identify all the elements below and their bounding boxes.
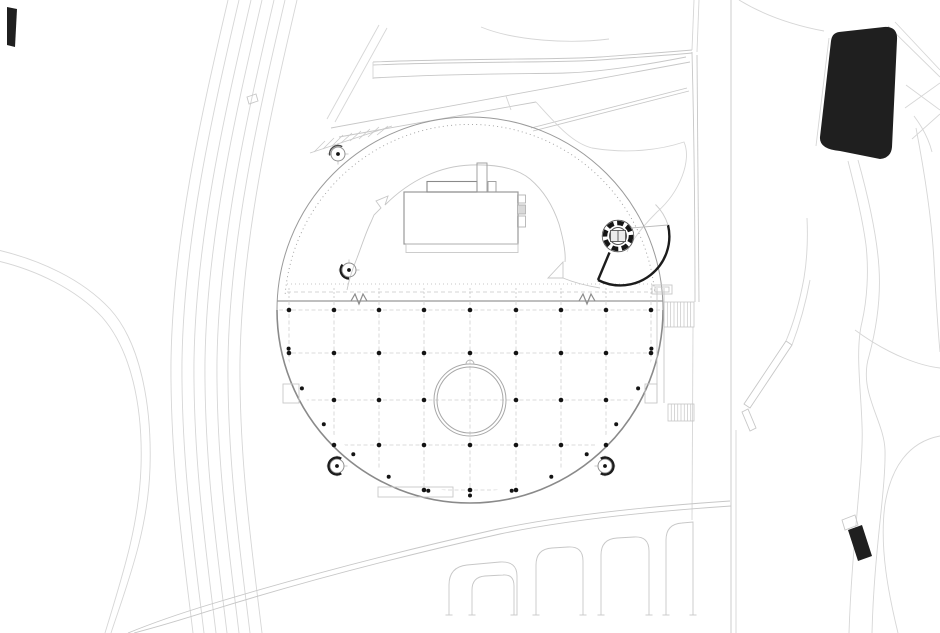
column-dot (332, 398, 337, 403)
column-dot (332, 351, 337, 356)
perimeter-dot (387, 475, 391, 479)
column-dot (377, 443, 382, 448)
column-dot (422, 488, 427, 493)
column-dot (559, 398, 564, 403)
column-dot (468, 308, 473, 313)
existing-building-topright (820, 27, 897, 159)
perimeter-dot (585, 452, 589, 456)
column-dot (559, 443, 564, 448)
perimeter-dot (636, 386, 640, 390)
column-grid (279, 288, 661, 504)
perimeter-dot (351, 452, 355, 456)
column-dot (604, 443, 609, 448)
column-dot (422, 351, 427, 356)
pavilion-chimney (477, 163, 487, 192)
road-bottom-diagonal (128, 501, 731, 633)
site-plan-canvas (0, 0, 940, 633)
existing-building-bottomright (848, 525, 872, 561)
stair-flight (664, 302, 694, 327)
perimeter-dot (300, 386, 304, 390)
perimeter-dot (549, 475, 553, 479)
column-dot (377, 308, 382, 313)
perimeter-dot (322, 422, 326, 426)
perimeter-dot (468, 494, 472, 498)
column-dot (287, 351, 292, 356)
column-dot (377, 351, 382, 356)
column-dot (649, 308, 654, 313)
column-dot (332, 308, 337, 313)
column-dot (559, 308, 564, 313)
survey-marker (328, 144, 349, 165)
pavilion-building (347, 163, 600, 290)
roads-left (0, 0, 297, 633)
column-dot (422, 308, 427, 313)
perimeter-dot (426, 489, 430, 493)
column-dot (514, 398, 519, 403)
survey-marker (339, 260, 360, 281)
perimeter-dot (649, 347, 653, 351)
column-dot (422, 443, 427, 448)
site-plan-svg (0, 0, 940, 633)
perimeter-dot (510, 489, 514, 493)
spiral-ramp (598, 205, 669, 286)
column-dot (422, 398, 427, 403)
parking-bays (449, 522, 693, 615)
generated-details (327, 144, 697, 616)
column-dot (468, 488, 473, 493)
column-dot (604, 398, 609, 403)
stair-flight (668, 404, 694, 421)
column-dot (604, 351, 609, 356)
column-dot (559, 351, 564, 356)
existing-building-topleft (7, 7, 17, 47)
column-dot (468, 351, 473, 356)
column-dot (514, 488, 519, 493)
perimeter-dot (614, 422, 618, 426)
perimeter-dot (287, 347, 291, 351)
column-dot (468, 443, 473, 448)
column-dot (649, 351, 654, 356)
freeway-right (692, 0, 736, 633)
column-dot (514, 443, 519, 448)
survey-marker (595, 456, 616, 477)
column-dot (514, 308, 519, 313)
column-dot (287, 308, 292, 313)
roads-top (327, 0, 824, 252)
column-dot (332, 443, 337, 448)
column-dot (377, 398, 382, 403)
column-dot (604, 308, 609, 313)
pavilion-main-hall (404, 192, 518, 244)
survey-marker (327, 456, 348, 477)
column-dot (514, 351, 519, 356)
